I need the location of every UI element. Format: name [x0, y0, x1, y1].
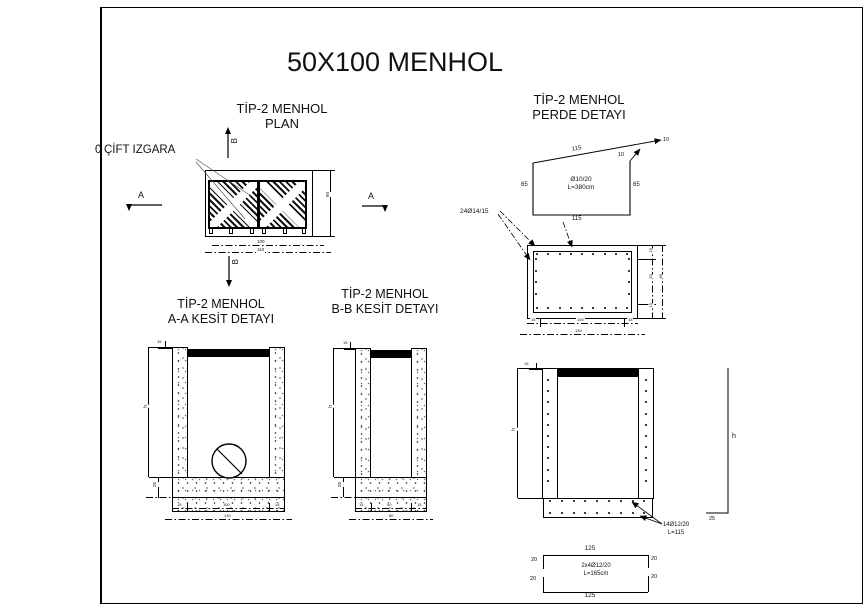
grate-leader-lines: [196, 159, 251, 219]
section-a-left-marker: [126, 204, 162, 211]
perde-bar-shape: [533, 140, 661, 215]
section-b-bottom-marker: [226, 256, 232, 287]
section-a-right-marker: [362, 205, 388, 212]
bent-bar-shape: [706, 368, 728, 513]
rebar-leader-lines: [498, 211, 572, 260]
elev-leader-lines: [632, 502, 662, 524]
pipe-symbol: [212, 444, 246, 478]
linework-overlay: [0, 0, 864, 610]
section-b-top-marker: [225, 127, 231, 158]
drawing-sheet: 50X100 MENHOL TİP-2 MENHOL PLAN 0 ÇİFT I…: [0, 0, 864, 610]
